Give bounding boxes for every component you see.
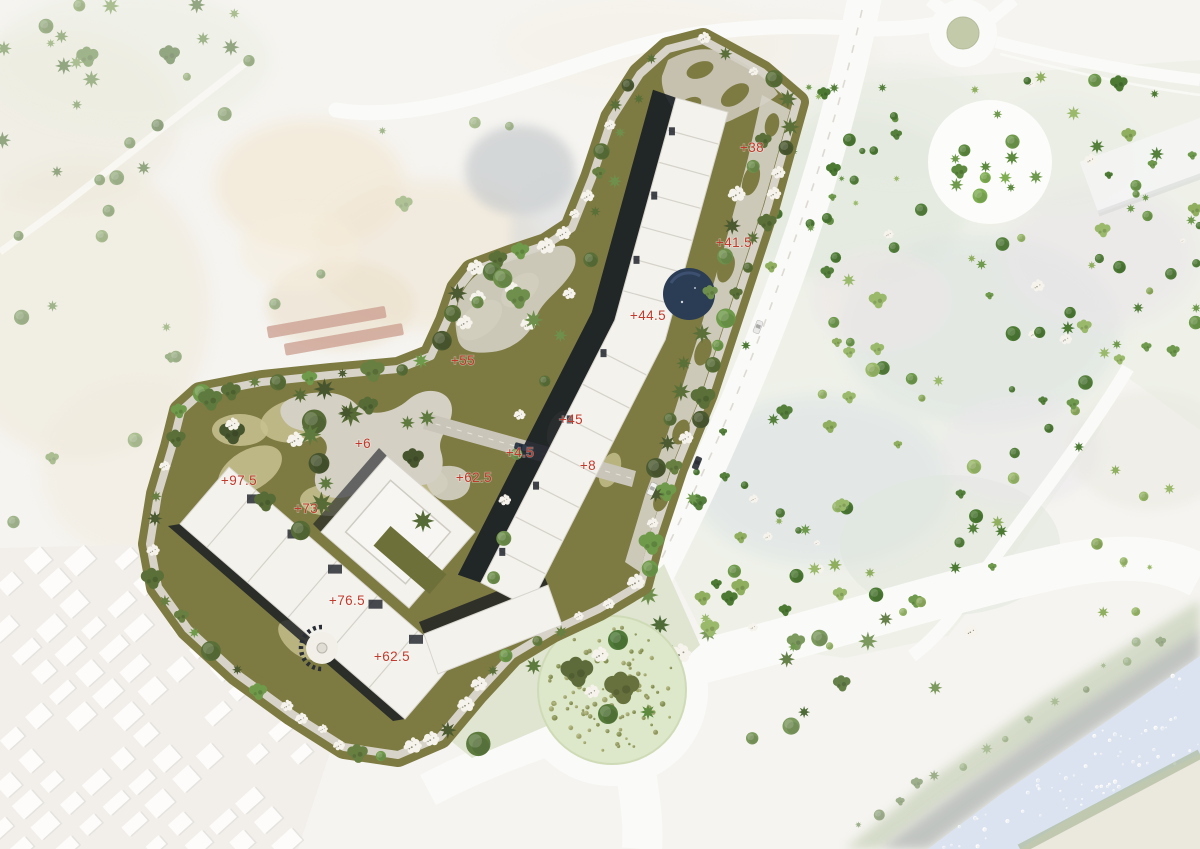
elevation-label: +62.5 <box>456 470 492 485</box>
north-roundabout-island <box>947 17 979 49</box>
tree-plaza <box>928 100 1052 224</box>
elevation-label: +38 <box>740 140 764 155</box>
tree-plaza-circle <box>928 100 1052 224</box>
elevation-label: +97.5 <box>221 473 257 488</box>
elevation-label: +76.5 <box>329 593 365 608</box>
masterplan-aerial-view: +38+41.5+44.5+55+45+6+4.5+62.5+8+97.5+73… <box>0 0 1200 849</box>
elevation-label: +6 <box>355 436 371 451</box>
masterplan-screenshot: +38+41.5+44.5+55+45+6+4.5+62.5+8+97.5+73… <box>0 0 1200 849</box>
elevation-label: +41.5 <box>716 235 752 250</box>
elevation-label: +8 <box>580 458 596 473</box>
elevation-label: +4.5 <box>506 445 534 460</box>
elevation-label: +44.5 <box>630 308 666 323</box>
elevation-label: +55 <box>451 353 475 368</box>
elevation-label: +73 <box>294 501 318 516</box>
elevation-label: +62.5 <box>374 649 410 664</box>
elevation-label: +45 <box>559 412 583 427</box>
south-road <box>636 772 643 849</box>
